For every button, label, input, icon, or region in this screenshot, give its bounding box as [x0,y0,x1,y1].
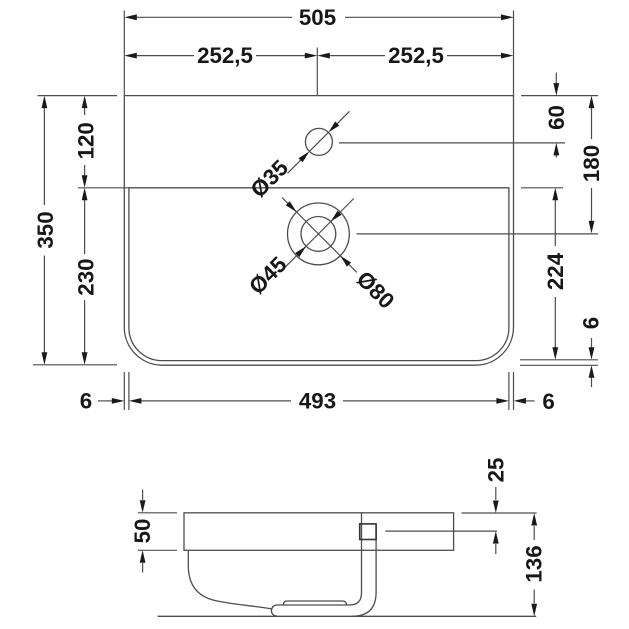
svg-text:252,5: 252,5 [197,43,253,68]
svg-text:Ø35: Ø35 [246,155,293,202]
svg-text:60: 60 [544,105,569,130]
svg-text:252,5: 252,5 [388,43,444,68]
svg-text:120: 120 [74,122,99,159]
svg-text:6: 6 [579,317,604,329]
svg-text:6: 6 [542,389,554,414]
svg-text:6: 6 [80,388,92,413]
svg-text:Ø80: Ø80 [352,266,399,313]
svg-text:25: 25 [483,458,508,483]
svg-text:180: 180 [579,145,604,182]
svg-text:505: 505 [299,5,336,30]
svg-text:230: 230 [74,258,99,295]
svg-text:224: 224 [543,252,568,290]
svg-text:50: 50 [130,519,155,544]
svg-text:350: 350 [33,211,58,248]
svg-text:Ø45: Ø45 [244,252,291,299]
svg-text:136: 136 [522,545,547,582]
svg-text:493: 493 [299,388,336,413]
